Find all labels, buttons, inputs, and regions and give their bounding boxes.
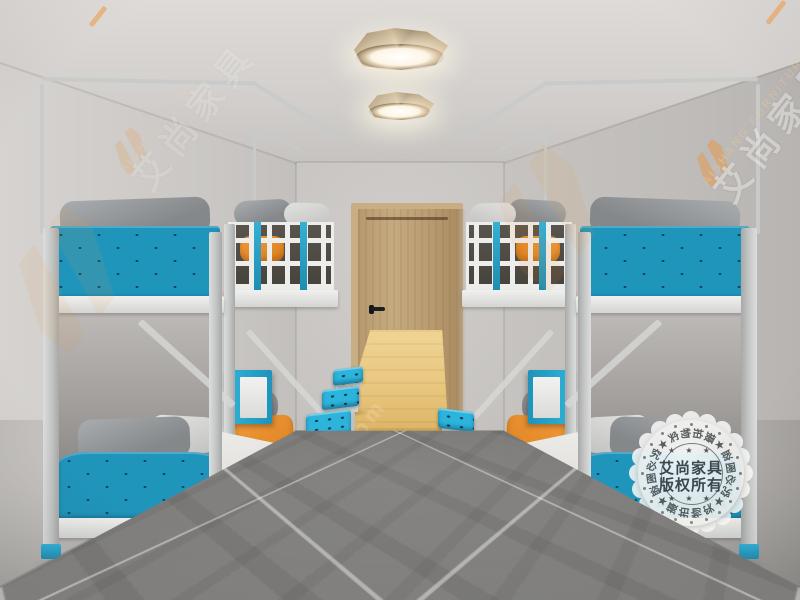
- canopy-pole: [756, 84, 760, 234]
- upper-bunk-rail: [576, 296, 754, 313]
- teal-foot-cap: [576, 518, 593, 532]
- upper-teal-panel: [580, 226, 750, 300]
- stamp-subtitle: 版权所有: [630, 474, 752, 495]
- canopy-rail: [546, 77, 758, 85]
- copyright-stamp: ★盗图必究★实物拍摄★盗图必究★实物拍摄 ★ ★ ★ 艾尚家具 版权所有 ★ ★…: [630, 410, 752, 536]
- stamp-stars-bottom: ★ ★ ★: [630, 494, 752, 503]
- dorm-room-render: 艾尚家具 AISHANG FURNITURE 艾尚家具 AISHANG FURN…: [0, 0, 800, 600]
- stamp-stars-top: ★ ★ ★: [630, 446, 752, 455]
- canopy-rail-diagonal: [452, 80, 549, 142]
- bed-post-far: [578, 232, 591, 524]
- teal-foot-cap: [739, 544, 759, 559]
- stamp-ring-char: 物: [690, 506, 704, 520]
